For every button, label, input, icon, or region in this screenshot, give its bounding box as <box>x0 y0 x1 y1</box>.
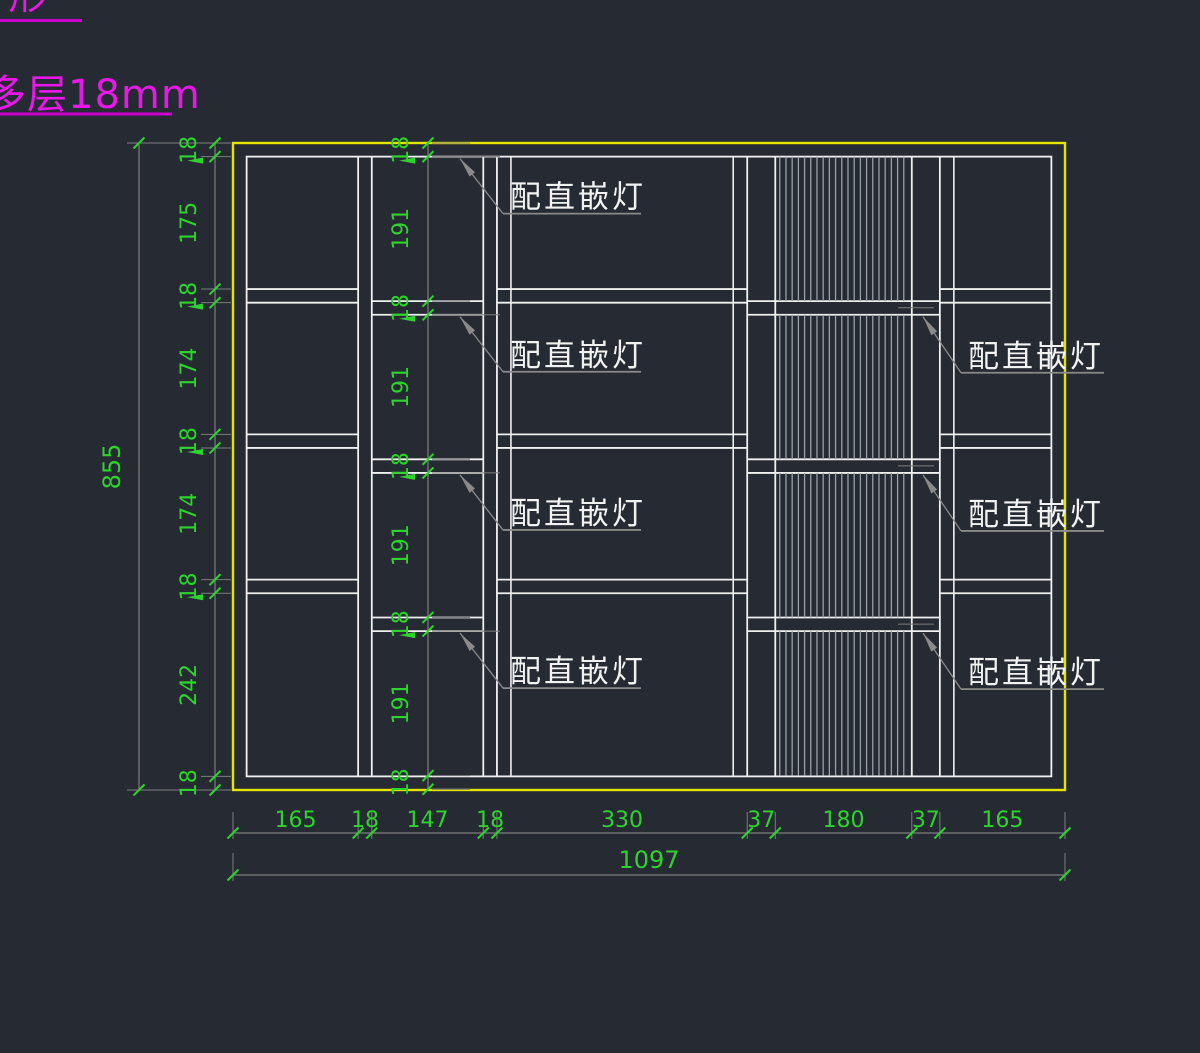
cad-viewport: 配直嵌灯配直嵌灯配直嵌灯配直嵌灯配直嵌灯配直嵌灯配直嵌灯855181751817… <box>0 0 1200 1049</box>
dim-text-bottom-chain: 18 <box>476 808 504 833</box>
light-fixture-label: 配直嵌灯 <box>510 654 646 690</box>
dim-text-left-chain: 174 <box>177 348 202 390</box>
dim-text-inner-chain: 191 <box>389 208 414 250</box>
dim-text-bottom-chain: 180 <box>823 808 865 833</box>
dim-text-left-chain: 242 <box>177 664 202 706</box>
dim-text-inner-chain: 191 <box>389 366 414 408</box>
light-fixture-label: 配直嵌灯 <box>510 496 646 532</box>
dim-text-left-chain: 175 <box>177 202 202 244</box>
light-fixture-label: 配直嵌灯 <box>510 180 646 216</box>
title-fragment-clipped: 形 <box>8 0 46 18</box>
dim-text-bottom-chain: 165 <box>275 808 317 833</box>
dim-text-inner-chain: 18 <box>389 768 414 796</box>
light-fixture-label: 配直嵌灯 <box>968 655 1104 691</box>
dim-text-left-chain: 174 <box>177 493 202 535</box>
leader-arrowhead <box>923 317 937 336</box>
dim-text-inner-chain: 191 <box>389 682 414 724</box>
dim-text-bottom-chain: 37 <box>912 808 940 833</box>
leader-arrowhead <box>923 633 937 652</box>
light-fixture-label: 配直嵌灯 <box>968 339 1104 375</box>
dim-text-left-chain: 18 <box>177 769 202 797</box>
material-spec-label: 多层18mm <box>0 72 201 118</box>
leader-arrowhead <box>460 475 475 493</box>
dim-text-bottom-chain: 37 <box>747 808 775 833</box>
leader-arrowhead <box>460 159 475 177</box>
dim-text-overall-height: 855 <box>98 444 126 490</box>
cabinet-inner-face <box>247 157 1052 777</box>
dim-text-overall-width: 1097 <box>618 846 679 874</box>
dim-text-inner-chain: 191 <box>389 524 414 566</box>
leader-arrowhead <box>460 317 475 335</box>
dim-text-bottom-chain: 330 <box>601 808 643 833</box>
dim-text-bottom-chain: 165 <box>981 808 1023 833</box>
leader-arrowhead <box>923 475 937 494</box>
leader-arrowhead <box>460 633 475 651</box>
dim-text-bottom-chain: 18 <box>351 808 379 833</box>
cad-drawing-canvas: 配直嵌灯配直嵌灯配直嵌灯配直嵌灯配直嵌灯配直嵌灯配直嵌灯855181751817… <box>0 0 1200 1049</box>
light-fixture-label: 配直嵌灯 <box>510 338 646 374</box>
dim-text-bottom-chain: 147 <box>407 808 449 833</box>
light-fixture-label: 配直嵌灯 <box>968 497 1104 533</box>
